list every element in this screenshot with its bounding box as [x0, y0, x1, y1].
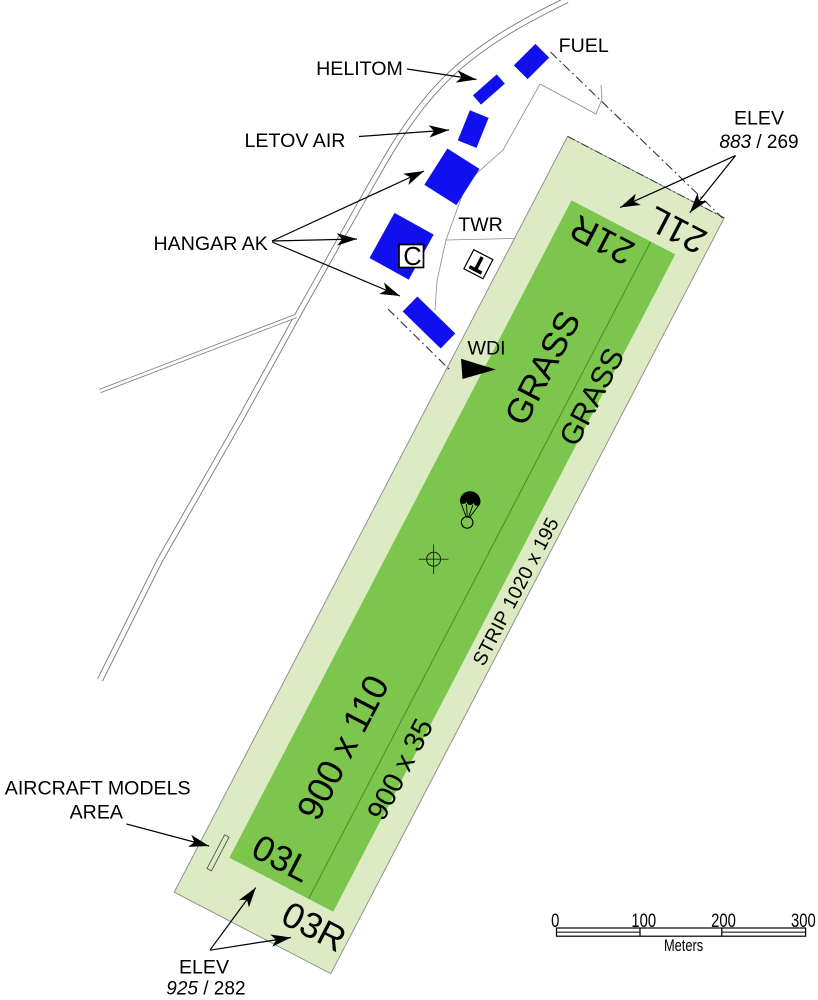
svg-text:100: 100	[631, 910, 656, 931]
svg-text:883 / 269: 883 / 269	[719, 132, 798, 153]
svg-text:AIRCRAFT MODELS: AIRCRAFT MODELS	[5, 778, 191, 800]
svg-text:Meters: Meters	[664, 938, 703, 956]
svg-text:C: C	[403, 243, 421, 271]
svg-text:WDI: WDI	[467, 338, 505, 360]
svg-text:ELEV: ELEV	[734, 107, 784, 129]
svg-text:ELEV: ELEV	[179, 957, 229, 979]
svg-text:0: 0	[551, 910, 559, 931]
svg-text:TWR: TWR	[458, 214, 503, 236]
svg-text:AREA: AREA	[70, 801, 124, 823]
svg-text:300: 300	[791, 910, 816, 931]
svg-text:FUEL: FUEL	[559, 35, 609, 57]
svg-text:925 / 282: 925 / 282	[166, 979, 245, 1000]
svg-text:HANGAR AK: HANGAR AK	[154, 233, 268, 255]
svg-text:HELITOM: HELITOM	[316, 58, 403, 80]
svg-text:LETOV AIR: LETOV AIR	[245, 130, 346, 152]
svg-text:200: 200	[711, 910, 736, 931]
